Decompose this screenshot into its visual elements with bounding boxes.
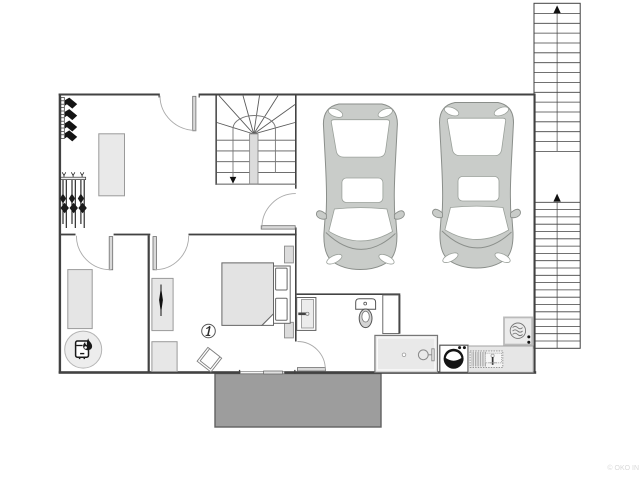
svg-text:© OKO IN: © OKO IN (607, 464, 639, 472)
